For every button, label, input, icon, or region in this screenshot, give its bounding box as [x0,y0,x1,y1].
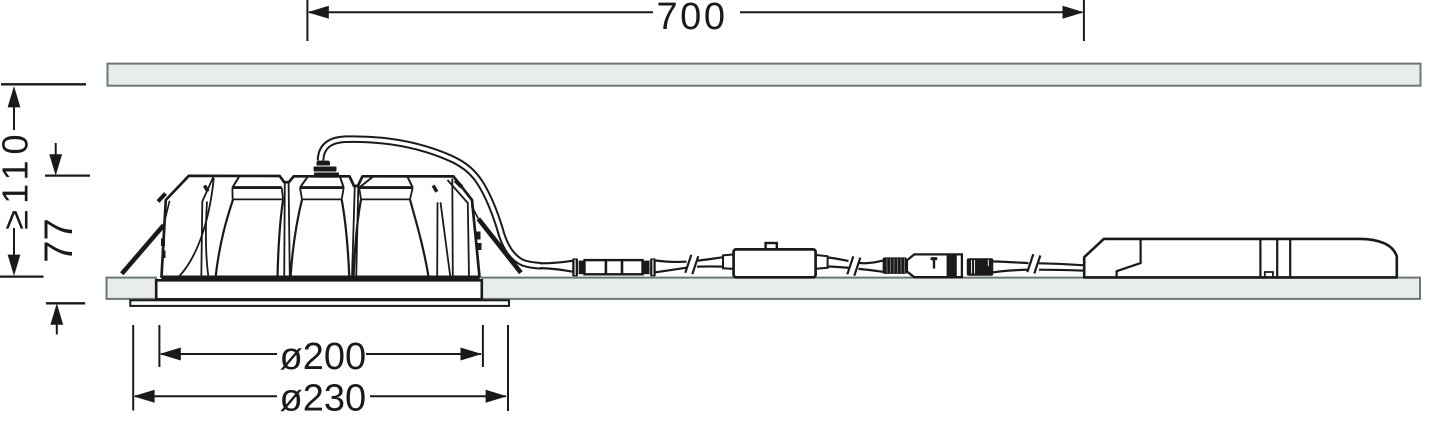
svg-text:77: 77 [37,218,81,263]
svg-text:≥110: ≥110 [0,128,36,229]
svg-text:ø200: ø200 [280,336,367,378]
svg-text:700: 700 [657,0,728,38]
svg-text:ø230: ø230 [280,378,367,420]
